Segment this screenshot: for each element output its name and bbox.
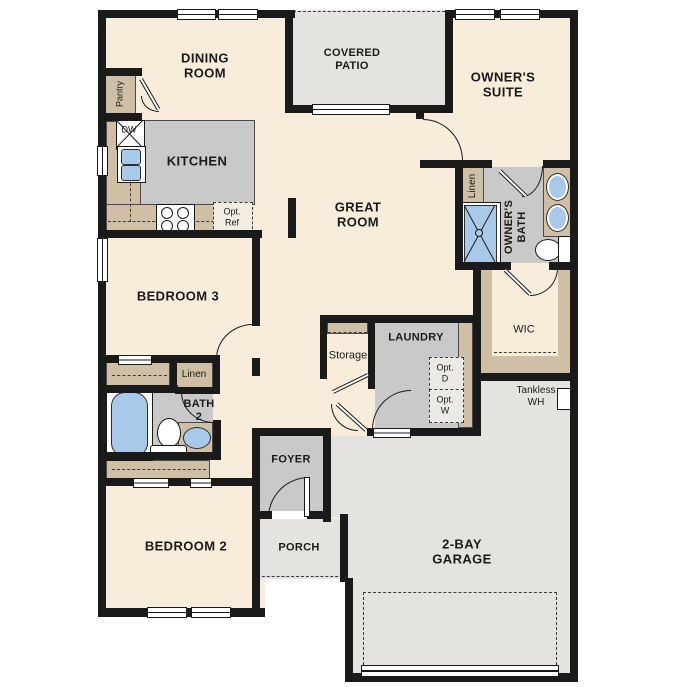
wall	[416, 105, 424, 119]
wall	[320, 315, 479, 323]
window	[500, 9, 540, 20]
wall	[98, 230, 262, 238]
garage-label: 2-BAY GARAGE	[432, 537, 491, 568]
wall	[98, 355, 220, 363]
window	[455, 9, 495, 20]
window	[177, 9, 216, 20]
burner-icon	[177, 207, 189, 219]
owners-bath-label: OWNER'S BATH	[503, 200, 529, 254]
wall	[320, 315, 327, 379]
kitchen-dashed-v	[130, 178, 131, 222]
porch-edge-dashed	[257, 576, 343, 577]
wall	[408, 428, 479, 436]
closet-slider	[190, 478, 212, 488]
wall	[455, 262, 511, 270]
wall	[98, 452, 220, 460]
porch-label: PORCH	[278, 542, 319, 555]
window	[218, 9, 258, 20]
burner-icon	[161, 207, 173, 219]
owners-sink-2	[546, 204, 569, 232]
bedroom3-closet-dashed	[112, 375, 167, 376]
wall	[473, 381, 481, 436]
wall	[455, 160, 463, 270]
wall	[255, 428, 330, 436]
window	[191, 607, 231, 618]
dining-room-label: DINING ROOM	[181, 51, 229, 82]
wall	[252, 238, 260, 326]
door-threshold	[373, 428, 411, 438]
kitchen-label: KITCHEN	[167, 153, 228, 168]
wall	[252, 428, 260, 616]
tankless-wh-label: Tankless WH	[517, 385, 556, 409]
wall	[543, 160, 578, 168]
window	[97, 238, 108, 282]
wall	[323, 428, 331, 522]
sliding-patio-door	[312, 104, 390, 115]
bedroom2-label: BEDROOM 2	[145, 538, 227, 553]
toilet-bowl	[157, 418, 181, 448]
laundry-label: LAUNDRY	[388, 332, 443, 345]
wall	[98, 113, 142, 121]
storage-label: Storage	[329, 350, 368, 363]
window	[97, 146, 108, 176]
wall	[368, 315, 375, 389]
owners-suite-label: OWNER'S SUITE	[471, 70, 535, 101]
shower-x-icon	[464, 205, 495, 262]
storage-shelf-dashed	[328, 332, 367, 333]
pantry-label: Pantry	[115, 81, 126, 107]
linen-owners-label: Linen	[467, 174, 479, 198]
opt-w-label: Opt. W	[436, 394, 453, 415]
covered-patio-label: COVERED PATIO	[324, 47, 381, 73]
wall	[285, 10, 293, 113]
bedroom2-closet-dashed	[112, 469, 206, 470]
kitchen-sink-bowl-2	[121, 165, 141, 181]
opt-d-label: Opt. D	[436, 362, 453, 383]
bedroom3-label: BEDROOM 3	[137, 288, 219, 303]
kitchen-sink-bowl-1	[121, 149, 141, 165]
wic-label: WIC	[513, 324, 534, 337]
wall	[98, 10, 106, 616]
front-door-leaf	[304, 477, 310, 517]
foyer-label: FOYER	[271, 454, 310, 467]
garage-door	[361, 665, 559, 677]
wall	[340, 514, 348, 582]
bathtub	[111, 392, 148, 457]
great-room-label: GREAT ROOM	[335, 200, 382, 231]
floor-plan: DINING ROOM COVERED PATIO OWNER'S SUITE …	[0, 0, 687, 687]
wall	[473, 373, 578, 381]
wall	[288, 198, 296, 238]
linen-hall-label: Linen	[182, 369, 206, 381]
closet-slider	[133, 478, 169, 488]
closet-slider	[118, 355, 152, 365]
window	[147, 607, 187, 618]
bath2-sink	[183, 427, 211, 449]
bath2-label: BATH 2	[184, 398, 215, 424]
wall	[98, 385, 178, 393]
bedroom3-closet	[106, 362, 170, 386]
opt-ref-label: Opt. Ref	[223, 206, 240, 227]
wall	[98, 68, 142, 76]
dishwasher-label: DW	[122, 125, 137, 136]
wic-dashed	[494, 352, 556, 353]
exterior-cutout	[265, 579, 345, 616]
wall	[170, 355, 177, 389]
wall	[252, 358, 260, 376]
wall	[570, 10, 578, 682]
garage-apron-dashed	[363, 592, 557, 670]
wall	[345, 578, 353, 682]
wall	[445, 10, 453, 113]
floor-garage-mid	[331, 436, 571, 517]
patio-edge-dashed	[293, 11, 445, 12]
owners-sink-1	[546, 173, 569, 201]
wall	[98, 478, 259, 486]
